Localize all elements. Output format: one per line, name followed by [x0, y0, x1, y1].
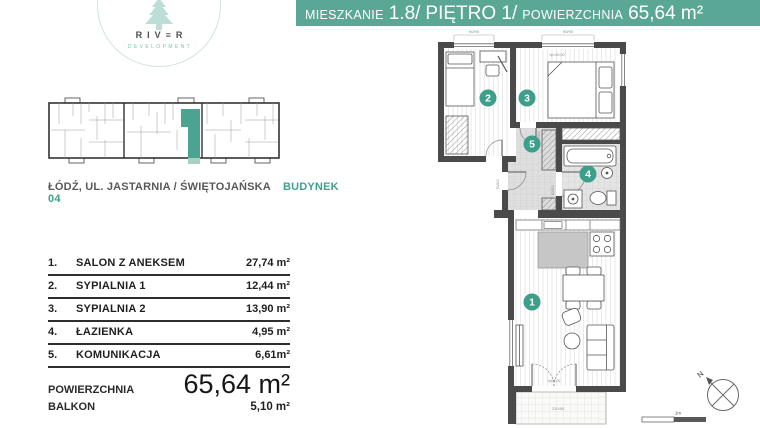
- unit-number: 1.8/: [389, 3, 421, 25]
- toilet-tank: [607, 191, 616, 205]
- total-area-label: POWIERZCHNIA: [48, 384, 134, 396]
- balcony-value: 5,10 m²: [250, 401, 290, 413]
- room-area: 12,44 m²: [246, 280, 290, 292]
- balcony-dim-label: 230/85: [552, 406, 565, 411]
- wardrobe: [446, 116, 468, 154]
- room-name: KOMUNIKACJA: [76, 349, 255, 361]
- room-name: ŁAZIENKA: [76, 326, 252, 338]
- building-overview: [45, 90, 285, 170]
- apartment-floorplan: 230/85: [430, 26, 760, 428]
- area-label: POWIERZCHNIA: [522, 4, 623, 26]
- scale-bar: 1m: [642, 411, 706, 423]
- table-row: 4. ŁAZIENKA 4,95 m²: [48, 322, 290, 345]
- table-row: 2. SYPIALNIA 1 12,44 m²: [48, 276, 290, 299]
- balcony: 230/85: [516, 392, 606, 424]
- desk: [480, 51, 506, 62]
- row-number: 4.: [48, 326, 76, 338]
- dimension-lines: [454, 35, 594, 41]
- minimap-outline: [49, 103, 279, 158]
- total-area-value: 65,64 m²: [183, 369, 290, 400]
- summary: POWIERZCHNIA 65,64 m² BALKON 5,10 m²: [48, 369, 290, 413]
- room-number: 1: [529, 297, 535, 309]
- chair: [486, 65, 499, 76]
- row-number: 1.: [48, 257, 76, 269]
- scale-label: 1m: [675, 411, 682, 416]
- room-area: 4,95 m²: [252, 326, 290, 338]
- kitchen-counter: [538, 232, 588, 268]
- tree-icon: [139, 0, 179, 30]
- room-number: 3: [524, 93, 530, 105]
- dining-table: [563, 275, 604, 301]
- floor-label: PIĘTRO 1/: [425, 3, 517, 25]
- unit-label: MIESZKANIE: [305, 4, 384, 26]
- row-number: 5.: [48, 349, 76, 361]
- coffee-table: [564, 333, 580, 349]
- table-row: 3. SYPIALNIA 2 13,90 m²: [48, 299, 290, 322]
- built-in-wardrobe: [562, 128, 620, 140]
- room-name: SYPIALNIA 1: [76, 280, 246, 292]
- toilet: [590, 192, 606, 205]
- pillow: [448, 54, 472, 64]
- chair: [587, 301, 601, 309]
- floorplan-sheet: MIESZKANIE 1.8/ PIĘTRO 1/ POWIERZCHNIA 6…: [0, 0, 760, 428]
- pillow: [599, 67, 612, 88]
- room-number: 5: [529, 139, 535, 151]
- room-area: 27,74 m²: [246, 257, 290, 269]
- hallway-cabinets: [542, 130, 556, 210]
- row-number: 2.: [48, 280, 76, 292]
- room-name: SYPIALNIA 2: [76, 303, 246, 315]
- brand-name: RIV≡R: [97, 30, 221, 40]
- header-bar: MIESZKANIE 1.8/ PIĘTRO 1/ POWIERZCHNIA 6…: [296, 0, 760, 26]
- sill-height-label: hp=90,00: [549, 53, 564, 57]
- balcony-label: BALKON: [48, 401, 95, 413]
- stove: [590, 232, 614, 256]
- window-dim-label: 90/90: [469, 29, 480, 34]
- minimap-highlighted-balcony: [188, 158, 200, 164]
- sofa: [587, 325, 614, 370]
- hall-cabinet: [542, 130, 556, 170]
- kitchen-sink: [544, 222, 562, 229]
- door-dim-label: 80/200: [551, 185, 555, 195]
- room-number: 4: [585, 169, 591, 181]
- hall-cabinet: [542, 198, 556, 210]
- room-area: 6,61m²: [255, 349, 290, 361]
- compass-icon: N: [695, 369, 738, 410]
- address-row: ŁÓDŹ, UL. JASTARNIA / ŚWIĘTOJAŃSKABUDYNE…: [48, 181, 348, 205]
- room-name: SALON Z ANEKSEM: [76, 257, 246, 269]
- room-area: 13,90 m²: [246, 303, 290, 315]
- row-number: 3.: [48, 303, 76, 315]
- kitchen-cabinets: [516, 220, 620, 230]
- room-number: 2: [485, 93, 491, 105]
- window-dim-label: 90/90: [563, 29, 574, 34]
- address-text: ŁÓDŹ, UL. JASTARNIA / ŚWIĘTOJAŃSKA: [48, 181, 271, 193]
- chair: [566, 301, 580, 309]
- door-dim-label: 90/200: [496, 179, 500, 189]
- compass-label: N: [695, 369, 705, 379]
- brand-subtitle: DEVELOPMENT: [97, 44, 221, 50]
- chair: [587, 267, 601, 275]
- table-row: 1. SALON Z ANEKSEM 27,74 m²: [48, 253, 290, 276]
- pillow: [599, 92, 612, 113]
- table-row: 5. KOMUNIKACJA 6,61m²: [48, 345, 290, 368]
- chair: [566, 267, 580, 275]
- room-table: 1. SALON Z ANEKSEM 27,74 m² 2. SYPIALNIA…: [48, 253, 290, 368]
- area-value: 65,64 m²: [628, 3, 703, 25]
